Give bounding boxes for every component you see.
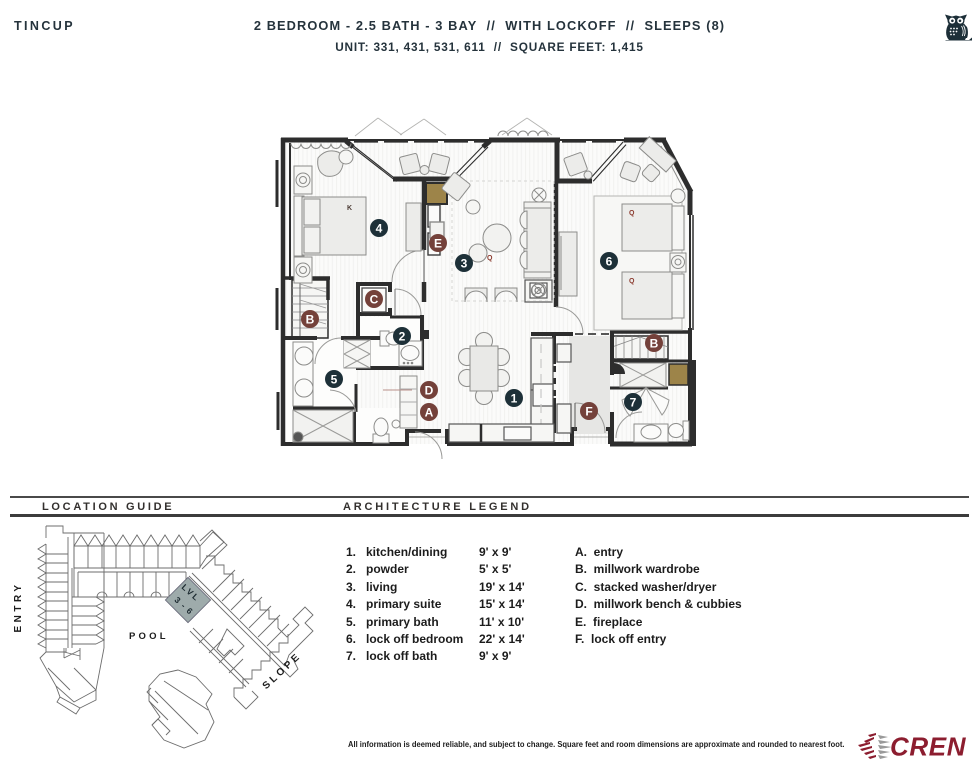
svg-text:POOL: POOL	[129, 631, 169, 642]
svg-text:CREN: CREN	[890, 733, 967, 760]
svg-text:C: C	[370, 293, 379, 307]
svg-text:F: F	[585, 405, 592, 419]
svg-text:Q: Q	[487, 255, 493, 262]
svg-text:SLOPE: SLOPE	[261, 650, 304, 691]
svg-text:6: 6	[606, 255, 613, 269]
svg-text:B: B	[650, 337, 659, 351]
svg-text:7: 7	[630, 396, 637, 410]
svg-text:2: 2	[399, 330, 406, 344]
svg-text:4: 4	[376, 222, 383, 236]
svg-text:1: 1	[511, 392, 518, 406]
svg-text:Q: Q	[629, 278, 635, 285]
svg-text:3: 3	[461, 257, 468, 271]
svg-text:A: A	[425, 406, 434, 420]
svg-text:ENTRY: ENTRY	[13, 581, 24, 632]
svg-text:Q: Q	[629, 210, 635, 217]
svg-text:D: D	[425, 384, 434, 398]
svg-text:E: E	[434, 237, 442, 251]
svg-text:K: K	[347, 205, 352, 212]
